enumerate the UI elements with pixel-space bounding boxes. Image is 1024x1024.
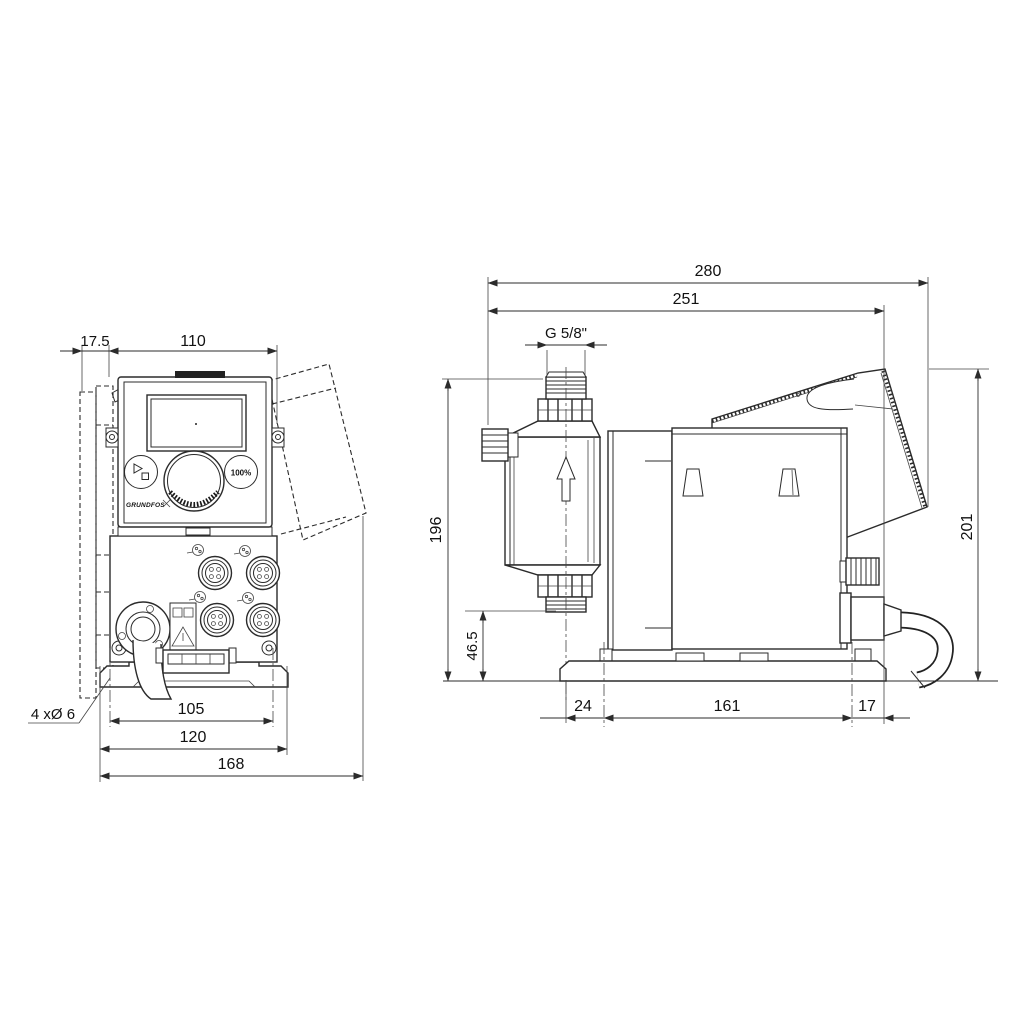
dim-connection-thread: G 5/8" bbox=[545, 325, 587, 342]
max-capacity-label: 100% bbox=[231, 469, 251, 478]
wall-clip bbox=[779, 469, 799, 496]
dim-height-to-connection: 196 bbox=[428, 517, 445, 544]
dosing-head bbox=[482, 367, 600, 703]
click-wheel bbox=[164, 451, 224, 511]
mounting-holes-callout: 4 xØ 6 bbox=[31, 706, 75, 723]
dim-bracket-offset: 17.5 bbox=[80, 333, 109, 350]
outlet-union-nut bbox=[538, 399, 592, 421]
pump-dimensional-drawing: 100% GRUNDFOS bbox=[0, 0, 1024, 1024]
screw-icon bbox=[262, 641, 276, 655]
head-flange bbox=[608, 431, 672, 650]
dim-rear-offset: 17 bbox=[858, 698, 876, 715]
m12-connector bbox=[247, 604, 280, 637]
top-tab bbox=[175, 371, 225, 378]
side-view: 280 251 G 5/8" 196 46.5 bbox=[428, 263, 998, 727]
mains-plug-thread bbox=[846, 558, 879, 585]
grundfos-logo: GRUNDFOS bbox=[126, 500, 170, 509]
drain-hatch bbox=[156, 648, 236, 673]
dim-front-offset: 24 bbox=[574, 698, 592, 715]
svg-text:GRUNDFOS: GRUNDFOS bbox=[126, 502, 165, 509]
m12-connector bbox=[201, 604, 234, 637]
start-stop-button bbox=[125, 456, 158, 489]
dimensional-drawing-page: 100% GRUNDFOS bbox=[0, 0, 1024, 1024]
dim-overall-width: 168 bbox=[218, 756, 245, 773]
dim-housing-width: 110 bbox=[180, 333, 206, 350]
dim-base-length: 161 bbox=[714, 698, 741, 715]
front-view: 100% GRUNDFOS bbox=[28, 333, 366, 782]
control-cube-phantom bbox=[268, 364, 366, 540]
wall-clip bbox=[683, 469, 703, 496]
m12-connector bbox=[199, 557, 232, 590]
dim-overall-height: 201 bbox=[959, 514, 976, 541]
dim-inlet-height: 46.5 bbox=[464, 631, 481, 660]
motor-housing bbox=[672, 428, 847, 649]
screw-icon bbox=[272, 431, 284, 443]
control-cube-front: 100% GRUNDFOS bbox=[106, 371, 284, 527]
dim-plate-width: 120 bbox=[180, 729, 207, 746]
m12-connector bbox=[247, 557, 280, 590]
cable-gland-side bbox=[851, 597, 884, 640]
dim-depth-to-panel: 251 bbox=[673, 291, 700, 308]
panel-grip-recess bbox=[807, 379, 854, 410]
air-vent-valve bbox=[482, 429, 518, 461]
screw-icon bbox=[106, 431, 118, 443]
max-capacity-button: 100% bbox=[225, 456, 258, 489]
gland-collar bbox=[840, 593, 851, 643]
inlet-union-nut bbox=[538, 575, 592, 597]
warning-label bbox=[170, 603, 196, 654]
dim-overall-depth: 280 bbox=[695, 263, 722, 280]
dim-hole-spacing: 105 bbox=[178, 701, 205, 718]
